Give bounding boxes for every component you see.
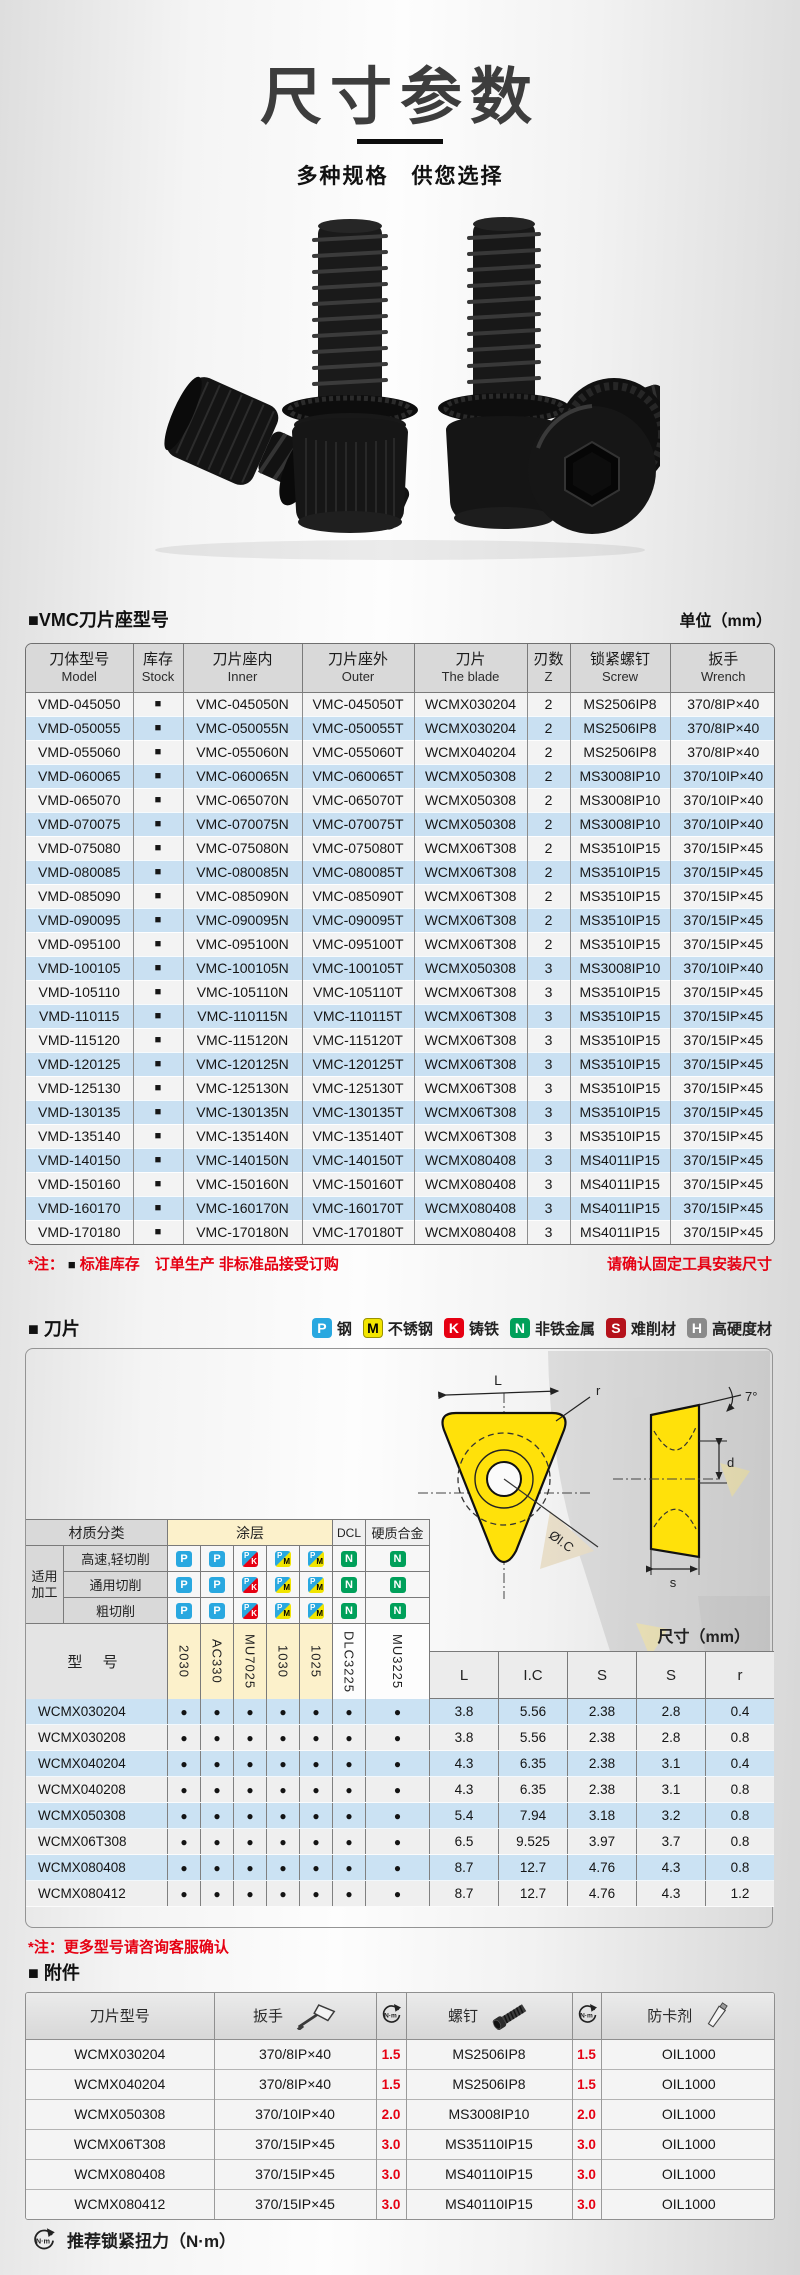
- dot-cell: ●: [333, 1881, 366, 1906]
- icon-cell: PK: [234, 1572, 267, 1598]
- cell: VMC-075080T: [302, 836, 414, 860]
- legend-label: 钢: [337, 1318, 352, 1339]
- cell: ■: [133, 1100, 183, 1124]
- cell: VMC-090095T: [302, 908, 414, 932]
- cell: WCMX040204: [26, 2069, 214, 2099]
- cell: VMC-115120T: [302, 1028, 414, 1052]
- cell: ■: [133, 1028, 183, 1052]
- accessories-section-title: ■ 附件: [28, 1959, 80, 1985]
- cell: VMC-135140N: [183, 1124, 302, 1148]
- cell: 2: [527, 764, 570, 788]
- cell: 3.0: [376, 2129, 406, 2159]
- wrench-icon: [295, 2002, 337, 2030]
- dot-cell: ●: [366, 1725, 430, 1750]
- cell: 2: [527, 932, 570, 956]
- cell: ■: [133, 860, 183, 884]
- cell: VMC-070075N: [183, 812, 302, 836]
- cell: VMD-170180: [26, 1220, 133, 1244]
- cell: WCMX050308: [414, 788, 527, 812]
- dot-cell: ●: [168, 1803, 201, 1828]
- dot-cell: ●: [333, 1699, 366, 1724]
- cell: ■: [133, 1004, 183, 1028]
- table-row: WCMX030208●●●●●●●3.85.562.382.80.8: [26, 1725, 774, 1751]
- svg-text:d: d: [727, 1455, 734, 1470]
- icon-cell: P: [168, 1598, 201, 1624]
- cut-row: 粗切削PPPKPMPMNN: [64, 1598, 430, 1624]
- cell: WCMX030204: [414, 692, 527, 716]
- cell: VMC-170180T: [302, 1220, 414, 1244]
- cut-label: 高速,轻切削: [64, 1546, 168, 1572]
- cell: OIL1000: [601, 2099, 775, 2129]
- col-screw: 螺钉: [406, 1993, 572, 2039]
- cell: 370/10IP×40: [670, 788, 775, 812]
- cell: VMD-050055: [26, 716, 133, 740]
- dot-cell: ●: [267, 1855, 300, 1880]
- accessories-heading-row: ■ 附件: [28, 1959, 772, 1985]
- dot-cell: ●: [201, 1725, 234, 1750]
- material-pm-split-icon: PM: [308, 1577, 324, 1593]
- cell: 3: [527, 1004, 570, 1028]
- svg-text:N·m: N·m: [384, 2012, 397, 2019]
- table-row: VMD-045050■VMC-045050NVMC-045050TWCMX030…: [26, 692, 775, 716]
- cell: 3: [527, 1076, 570, 1100]
- cell: VMC-120125T: [302, 1052, 414, 1076]
- dim-value: 3.7: [637, 1829, 706, 1854]
- insert-table-body: WCMX030204●●●●●●●3.85.562.382.80.4WCMX03…: [26, 1699, 774, 1907]
- model-column-header: 型 号: [26, 1624, 168, 1700]
- cell: ■: [133, 1196, 183, 1220]
- cell: VMC-050055T: [302, 716, 414, 740]
- cell: VMC-095100N: [183, 932, 302, 956]
- dot-cell: ●: [267, 1803, 300, 1828]
- col-blade-model: 刀片型号: [26, 1993, 214, 2039]
- dot-cell: ●: [201, 1829, 234, 1854]
- dot-cell: ●: [366, 1699, 430, 1724]
- cell: WCMX06T308: [414, 908, 527, 932]
- cell: VMD-085090: [26, 884, 133, 908]
- cell: MS40110IP15: [406, 2159, 572, 2189]
- cell: MS2506IP8: [570, 692, 670, 716]
- cell: VMD-065070: [26, 788, 133, 812]
- dimension-column-label: r: [706, 1652, 774, 1698]
- cell: ■: [133, 980, 183, 1004]
- cell: MS3510IP15: [570, 860, 670, 884]
- cell: WCMX06T308: [414, 932, 527, 956]
- cell: 370/8IP×40: [670, 716, 775, 740]
- table-row: VMD-160170■VMC-160170NVMC-160170TWCMX080…: [26, 1196, 775, 1220]
- cut-rows: 高速,轻切削PPPKPMPMNN通用切削PPPKPMPMNN粗切削PPPKPMP…: [64, 1546, 430, 1624]
- cell: 2: [527, 836, 570, 860]
- icon-cell: N: [366, 1598, 430, 1624]
- material-badge-k-icon: K: [444, 1318, 464, 1338]
- cell: WCMX06T308: [414, 1052, 527, 1076]
- cell: 370/8IP×40: [670, 692, 775, 716]
- coating-column-label: DLC3225: [333, 1624, 366, 1700]
- cell: ■: [133, 788, 183, 812]
- insert-model: WCMX030204: [26, 1699, 168, 1724]
- cell: VMD-140150: [26, 1148, 133, 1172]
- icon-cell: PM: [300, 1598, 333, 1624]
- dot-cell: ●: [234, 1803, 267, 1828]
- dot-cell: ●: [366, 1855, 430, 1880]
- dot-cell: ●: [168, 1829, 201, 1854]
- dim-value: 3.8: [430, 1725, 499, 1750]
- cell: ■: [133, 812, 183, 836]
- cell: VMC-060065T: [302, 764, 414, 788]
- cell: WCMX06T308: [414, 980, 527, 1004]
- cell: WCMX080408: [414, 1220, 527, 1244]
- cell: VMC-135140T: [302, 1124, 414, 1148]
- svg-text:s: s: [670, 1575, 677, 1590]
- icon-cell: PM: [267, 1546, 300, 1572]
- cell: 3: [527, 1196, 570, 1220]
- cell: 2: [527, 716, 570, 740]
- table-row: VMD-140150■VMC-140150NVMC-140150TWCMX080…: [26, 1148, 775, 1172]
- cell: VMC-080085T: [302, 860, 414, 884]
- material-pm-split-icon: PM: [275, 1551, 291, 1567]
- dot-cell: ●: [267, 1829, 300, 1854]
- torque-icon: N·m: [379, 2002, 403, 2026]
- cell: VMC-090095N: [183, 908, 302, 932]
- dim-value: 5.4: [430, 1803, 499, 1828]
- holder-note-row: *注：■标准库存 订单生产 非标准品接受订购 请确认固定工具安装尺寸: [28, 1253, 772, 1274]
- dim-value: 3.18: [568, 1803, 637, 1828]
- dot-cell: ●: [333, 1855, 366, 1880]
- cell: 370/15IP×45: [670, 1076, 775, 1100]
- cell: MS4011IP15: [570, 1220, 670, 1244]
- cell: MS3008IP10: [570, 812, 670, 836]
- cell: MS3510IP15: [570, 1076, 670, 1100]
- insert-drawing: L r ØI.C 7° d s: [398, 1351, 770, 1701]
- table-row: WCMX040204●●●●●●●4.36.352.383.10.4: [26, 1751, 774, 1777]
- col-screw: 锁紧螺钉Screw: [570, 644, 670, 692]
- cell: 2.0: [376, 2099, 406, 2129]
- dot-cell: ●: [234, 1777, 267, 1802]
- table-row: WCMX080408370/15IP×453.0MS40110IP153.0OI…: [26, 2159, 775, 2189]
- cell: VMC-065070T: [302, 788, 414, 812]
- cell: VMC-160170N: [183, 1196, 302, 1220]
- cell: ■: [133, 908, 183, 932]
- table-row: VMD-115120■VMC-115120NVMC-115120TWCMX06T…: [26, 1028, 775, 1052]
- table-row: VMD-120125■VMC-120125NVMC-120125TWCMX06T…: [26, 1052, 775, 1076]
- holder-header-row: 刀体型号Model 库存Stock 刀片座内Inner 刀片座外Outer 刀片…: [26, 644, 775, 692]
- svg-text:L: L: [494, 1372, 502, 1388]
- dim-value: 4.3: [430, 1751, 499, 1776]
- cell: 2: [527, 812, 570, 836]
- cell: WCMX050308: [414, 812, 527, 836]
- cell: WCMX080412: [26, 2189, 214, 2219]
- col-blade: 刀片The blade: [414, 644, 527, 692]
- insert-panel: L r ØI.C 7° d s: [25, 1348, 773, 1928]
- dot-cell: ●: [300, 1777, 333, 1802]
- icon-cell: P: [201, 1546, 234, 1572]
- cell: WCMX080408: [26, 2159, 214, 2189]
- dim-value: 4.3: [430, 1777, 499, 1802]
- cell: OIL1000: [601, 2069, 775, 2099]
- cell: MS4011IP15: [570, 1172, 670, 1196]
- table-row: WCMX040208●●●●●●●4.36.352.383.10.8: [26, 1777, 774, 1803]
- dot-cell: ●: [300, 1725, 333, 1750]
- dot-cell: ●: [267, 1881, 300, 1906]
- dim-value: 8.7: [430, 1855, 499, 1880]
- material-badge-p-icon: P: [312, 1318, 332, 1338]
- cell: VMC-080085N: [183, 860, 302, 884]
- cell: MS35110IP15: [406, 2129, 572, 2159]
- holder-table: 刀体型号Model 库存Stock 刀片座内Inner 刀片座外Outer 刀片…: [25, 643, 775, 1245]
- page: 尺寸参数 多种规格 供您选择: [0, 0, 800, 2275]
- col-screw-torque: N·m: [572, 1993, 601, 2039]
- cell: MS3510IP15: [570, 1124, 670, 1148]
- table-row: VMD-070075■VMC-070075NVMC-070075TWCMX050…: [26, 812, 775, 836]
- dim-value: 3.1: [637, 1777, 706, 1802]
- insert-note: *注：更多型号请咨询客服确认: [28, 1936, 229, 1957]
- cell: WCMX030204: [26, 2039, 214, 2069]
- table-row: VMD-085090■VMC-085090NVMC-085090TWCMX06T…: [26, 884, 775, 908]
- cell: VMC-160170T: [302, 1196, 414, 1220]
- cell: 3: [527, 956, 570, 980]
- table-row: WCMX050308●●●●●●●5.47.943.183.20.8: [26, 1803, 774, 1829]
- dimension-header: LI.CSSr: [430, 1651, 774, 1699]
- cell: WCMX050308: [414, 764, 527, 788]
- cell: VMD-150160: [26, 1172, 133, 1196]
- insert-model: WCMX080412: [26, 1881, 168, 1906]
- dim-value: 6.35: [499, 1777, 568, 1802]
- dot-cell: ●: [333, 1777, 366, 1802]
- material-p-icon: P: [209, 1603, 225, 1619]
- dim-value: 2.38: [568, 1751, 637, 1776]
- material-pk-split-icon: PK: [242, 1577, 258, 1593]
- cell: 370/15IP×45: [670, 980, 775, 1004]
- accessories-header-row: 刀片型号 扳手: [26, 1993, 775, 2039]
- col-stock: 库存Stock: [133, 644, 183, 692]
- cell: ■: [133, 836, 183, 860]
- material-pm-split-icon: PM: [308, 1603, 324, 1619]
- dim-value: 3.97: [568, 1829, 637, 1854]
- dot-cell: ●: [234, 1855, 267, 1880]
- cell: 1.5: [376, 2039, 406, 2069]
- cell: 370/10IP×40: [670, 764, 775, 788]
- cell: WCMX080408: [414, 1172, 527, 1196]
- cell: ■: [133, 884, 183, 908]
- icon-cell: PM: [300, 1572, 333, 1598]
- cell: 3: [527, 1148, 570, 1172]
- cell: VMC-095100T: [302, 932, 414, 956]
- dim-value: 8.7: [430, 1881, 499, 1906]
- cell: VMD-060065: [26, 764, 133, 788]
- dimension-column-label: I.C: [499, 1652, 568, 1698]
- dim-value: 3.2: [637, 1803, 706, 1828]
- cell: WCMX080408: [414, 1148, 527, 1172]
- table-row: WCMX050308370/10IP×402.0MS3008IP102.0OIL…: [26, 2099, 775, 2129]
- table-row: VMD-150160■VMC-150160NVMC-150160TWCMX080…: [26, 1172, 775, 1196]
- cell: 370/15IP×45: [670, 1220, 775, 1244]
- cell: MS3008IP10: [570, 764, 670, 788]
- cell: VMC-170180N: [183, 1220, 302, 1244]
- table-row: VMD-075080■VMC-075080NVMC-075080TWCMX06T…: [26, 836, 775, 860]
- cell: 3.0: [572, 2159, 601, 2189]
- classification-table: 材质分类 涂层 DCL 硬质合金 适用加工 高速,轻切削PPPKPMPMNN通用…: [26, 1519, 430, 1700]
- coating-column-label: 1025: [300, 1624, 333, 1700]
- icon-cell: N: [333, 1572, 366, 1598]
- icon-cell: PK: [234, 1546, 267, 1572]
- page-title: 尺寸参数: [0, 46, 800, 136]
- dot-cell: ●: [168, 1777, 201, 1802]
- cell: VMC-125130N: [183, 1076, 302, 1100]
- cell: MS2506IP8: [406, 2069, 572, 2099]
- dim-value: 2.38: [568, 1777, 637, 1802]
- cell: MS3008IP10: [406, 2099, 572, 2129]
- cell: 370/10IP×40: [670, 956, 775, 980]
- torque-icon: N·m: [575, 2002, 599, 2026]
- table-row: VMD-100105■VMC-100105NVMC-100105TWCMX050…: [26, 956, 775, 980]
- dim-value: 4.3: [637, 1881, 706, 1906]
- dot-cell: ●: [234, 1829, 267, 1854]
- cell: MS3510IP15: [570, 1052, 670, 1076]
- dot-cell: ●: [300, 1751, 333, 1776]
- cell: WCMX050308: [26, 2099, 214, 2129]
- material-n-icon: N: [390, 1577, 406, 1593]
- dot-cell: ●: [201, 1777, 234, 1802]
- material-class-header: 材质分类: [26, 1520, 168, 1546]
- insert-note-row: *注：更多型号请咨询客服确认: [28, 1936, 772, 1957]
- product-photo: [140, 212, 660, 562]
- cell: VMD-045050: [26, 692, 133, 716]
- material-pm-split-icon: PM: [308, 1551, 324, 1567]
- torque-footnote: N·m 推荐锁紧扭力（N·m）: [30, 2226, 236, 2253]
- cell: MS4011IP15: [570, 1196, 670, 1220]
- dot-cell: ●: [333, 1751, 366, 1776]
- table-row: VMD-055060■VMC-055060NVMC-055060TWCMX040…: [26, 740, 775, 764]
- cell: MS3510IP15: [570, 1004, 670, 1028]
- cell: 370/15IP×45: [670, 884, 775, 908]
- dot-cell: ●: [366, 1777, 430, 1802]
- cell: WCMX06T308: [414, 1100, 527, 1124]
- material-p-icon: P: [209, 1551, 225, 1567]
- cell: VMC-055060N: [183, 740, 302, 764]
- cell: VMC-055060T: [302, 740, 414, 764]
- cell: 2: [527, 860, 570, 884]
- cell: 3: [527, 1172, 570, 1196]
- dot-cell: ●: [168, 1725, 201, 1750]
- cell: 3: [527, 1124, 570, 1148]
- cell: VMC-120125N: [183, 1052, 302, 1076]
- cell: WCMX030204: [414, 716, 527, 740]
- cell: VMD-125130: [26, 1076, 133, 1100]
- dot-cell: ●: [234, 1725, 267, 1750]
- cell: VMC-130135T: [302, 1100, 414, 1124]
- table-row: WCMX06T308370/15IP×453.0MS35110IP153.0OI…: [26, 2129, 775, 2159]
- cell: 3.0: [376, 2189, 406, 2219]
- cell: VMC-105110T: [302, 980, 414, 1004]
- cell: ■: [133, 740, 183, 764]
- cell: OIL1000: [601, 2039, 775, 2069]
- cell: MS3008IP10: [570, 788, 670, 812]
- cell: 370/15IP×45: [670, 1004, 775, 1028]
- page-subtitle: 多种规格 供您选择: [0, 160, 800, 190]
- icon-cell: P: [201, 1572, 234, 1598]
- dot-cell: ●: [267, 1751, 300, 1776]
- cell: 3: [527, 1100, 570, 1124]
- dim-value: 2.38: [568, 1699, 637, 1724]
- dim-value: 2.38: [568, 1725, 637, 1750]
- cell: WCMX080408: [414, 1196, 527, 1220]
- cell: 2: [527, 788, 570, 812]
- accessories-table-body: WCMX030204370/8IP×401.5MS2506IP81.5OIL10…: [26, 2039, 775, 2219]
- dim-value: 3.1: [637, 1751, 706, 1776]
- cell: VMC-110115N: [183, 1004, 302, 1028]
- cell: 3.0: [572, 2129, 601, 2159]
- cell: VMC-075080N: [183, 836, 302, 860]
- cell: VMD-115120: [26, 1028, 133, 1052]
- cell: VMC-150160N: [183, 1172, 302, 1196]
- dim-value: 5.56: [499, 1699, 568, 1724]
- dimension-column-label: S: [637, 1652, 706, 1698]
- cell: 2.0: [572, 2099, 601, 2129]
- icon-cell: N: [366, 1572, 430, 1598]
- torque-footnote-text: 推荐锁紧扭力（N·m）: [67, 2227, 236, 2252]
- dot-cell: ●: [333, 1829, 366, 1854]
- cell: 3: [527, 1052, 570, 1076]
- dim-value: 2.8: [637, 1699, 706, 1724]
- coating-header: 涂层: [168, 1520, 333, 1546]
- cell: MS3510IP15: [570, 884, 670, 908]
- dot-cell: ●: [168, 1751, 201, 1776]
- cell: VMC-100105T: [302, 956, 414, 980]
- screw-icon: [490, 2001, 530, 2031]
- holder-heading-row: ■VMC刀片座型号 单位（mm）: [28, 606, 772, 632]
- table-row: VMD-130135■VMC-130135NVMC-130135TWCMX06T…: [26, 1100, 775, 1124]
- dot-cell: ●: [168, 1699, 201, 1724]
- dot-cell: ●: [333, 1803, 366, 1828]
- dot-cell: ●: [267, 1725, 300, 1750]
- coating-column-label: MU7025: [234, 1624, 267, 1700]
- cell: OIL1000: [601, 2159, 775, 2189]
- material-p-icon: P: [209, 1577, 225, 1593]
- cell: MS2506IP8: [570, 716, 670, 740]
- cell: ■: [133, 764, 183, 788]
- cell: 370/15IP×45: [670, 1028, 775, 1052]
- cell: MS4011IP15: [570, 1148, 670, 1172]
- table-row: WCMX030204370/8IP×401.5MS2506IP81.5OIL10…: [26, 2039, 775, 2069]
- cell: ■: [133, 1124, 183, 1148]
- table-row: VMD-110115■VMC-110115NVMC-110115TWCMX06T…: [26, 1004, 775, 1028]
- dim-value: 1.2: [706, 1881, 774, 1906]
- cell: VMD-070075: [26, 812, 133, 836]
- icon-cell: P: [168, 1572, 201, 1598]
- cell: 370/15IP×45: [214, 2129, 376, 2159]
- stock-square-icon: ■: [68, 1257, 76, 1272]
- cell: WCMX06T308: [26, 2129, 214, 2159]
- cell: MS3510IP15: [570, 908, 670, 932]
- cell: VMD-095100: [26, 932, 133, 956]
- tube-icon: [704, 2001, 730, 2031]
- dot-cell: ●: [201, 1699, 234, 1724]
- cell: WCMX06T308: [414, 884, 527, 908]
- cell: VMC-110115T: [302, 1004, 414, 1028]
- coating-column-label: AC330: [201, 1624, 234, 1700]
- cell: VMC-070075T: [302, 812, 414, 836]
- cut-label: 通用切削: [64, 1572, 168, 1598]
- apply-machining-header: 适用加工: [26, 1546, 64, 1624]
- cell: MS3008IP10: [570, 956, 670, 980]
- material-pm-split-icon: PM: [275, 1577, 291, 1593]
- dim-value: 6.5: [430, 1829, 499, 1854]
- cell: 1.5: [376, 2069, 406, 2099]
- table-row: WCMX06T308●●●●●●●6.59.5253.973.70.8: [26, 1829, 774, 1855]
- material-n-icon: N: [341, 1603, 357, 1619]
- cell: 370/8IP×40: [214, 2069, 376, 2099]
- cell: 370/15IP×45: [214, 2189, 376, 2219]
